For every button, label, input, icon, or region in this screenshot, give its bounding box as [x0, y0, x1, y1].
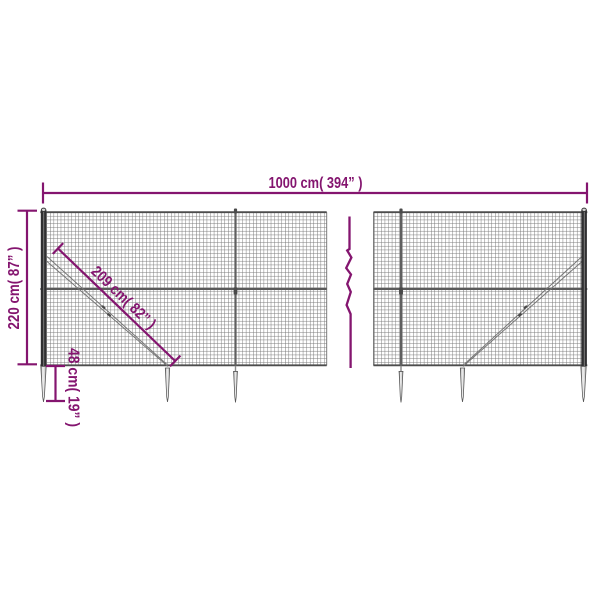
- svg-text:220 cm( 87” ): 220 cm( 87” ): [6, 247, 23, 330]
- svg-text:1000 cm( 394” ): 1000 cm( 394” ): [269, 175, 363, 192]
- svg-text:48 cm( 19” ): 48 cm( 19” ): [65, 348, 82, 427]
